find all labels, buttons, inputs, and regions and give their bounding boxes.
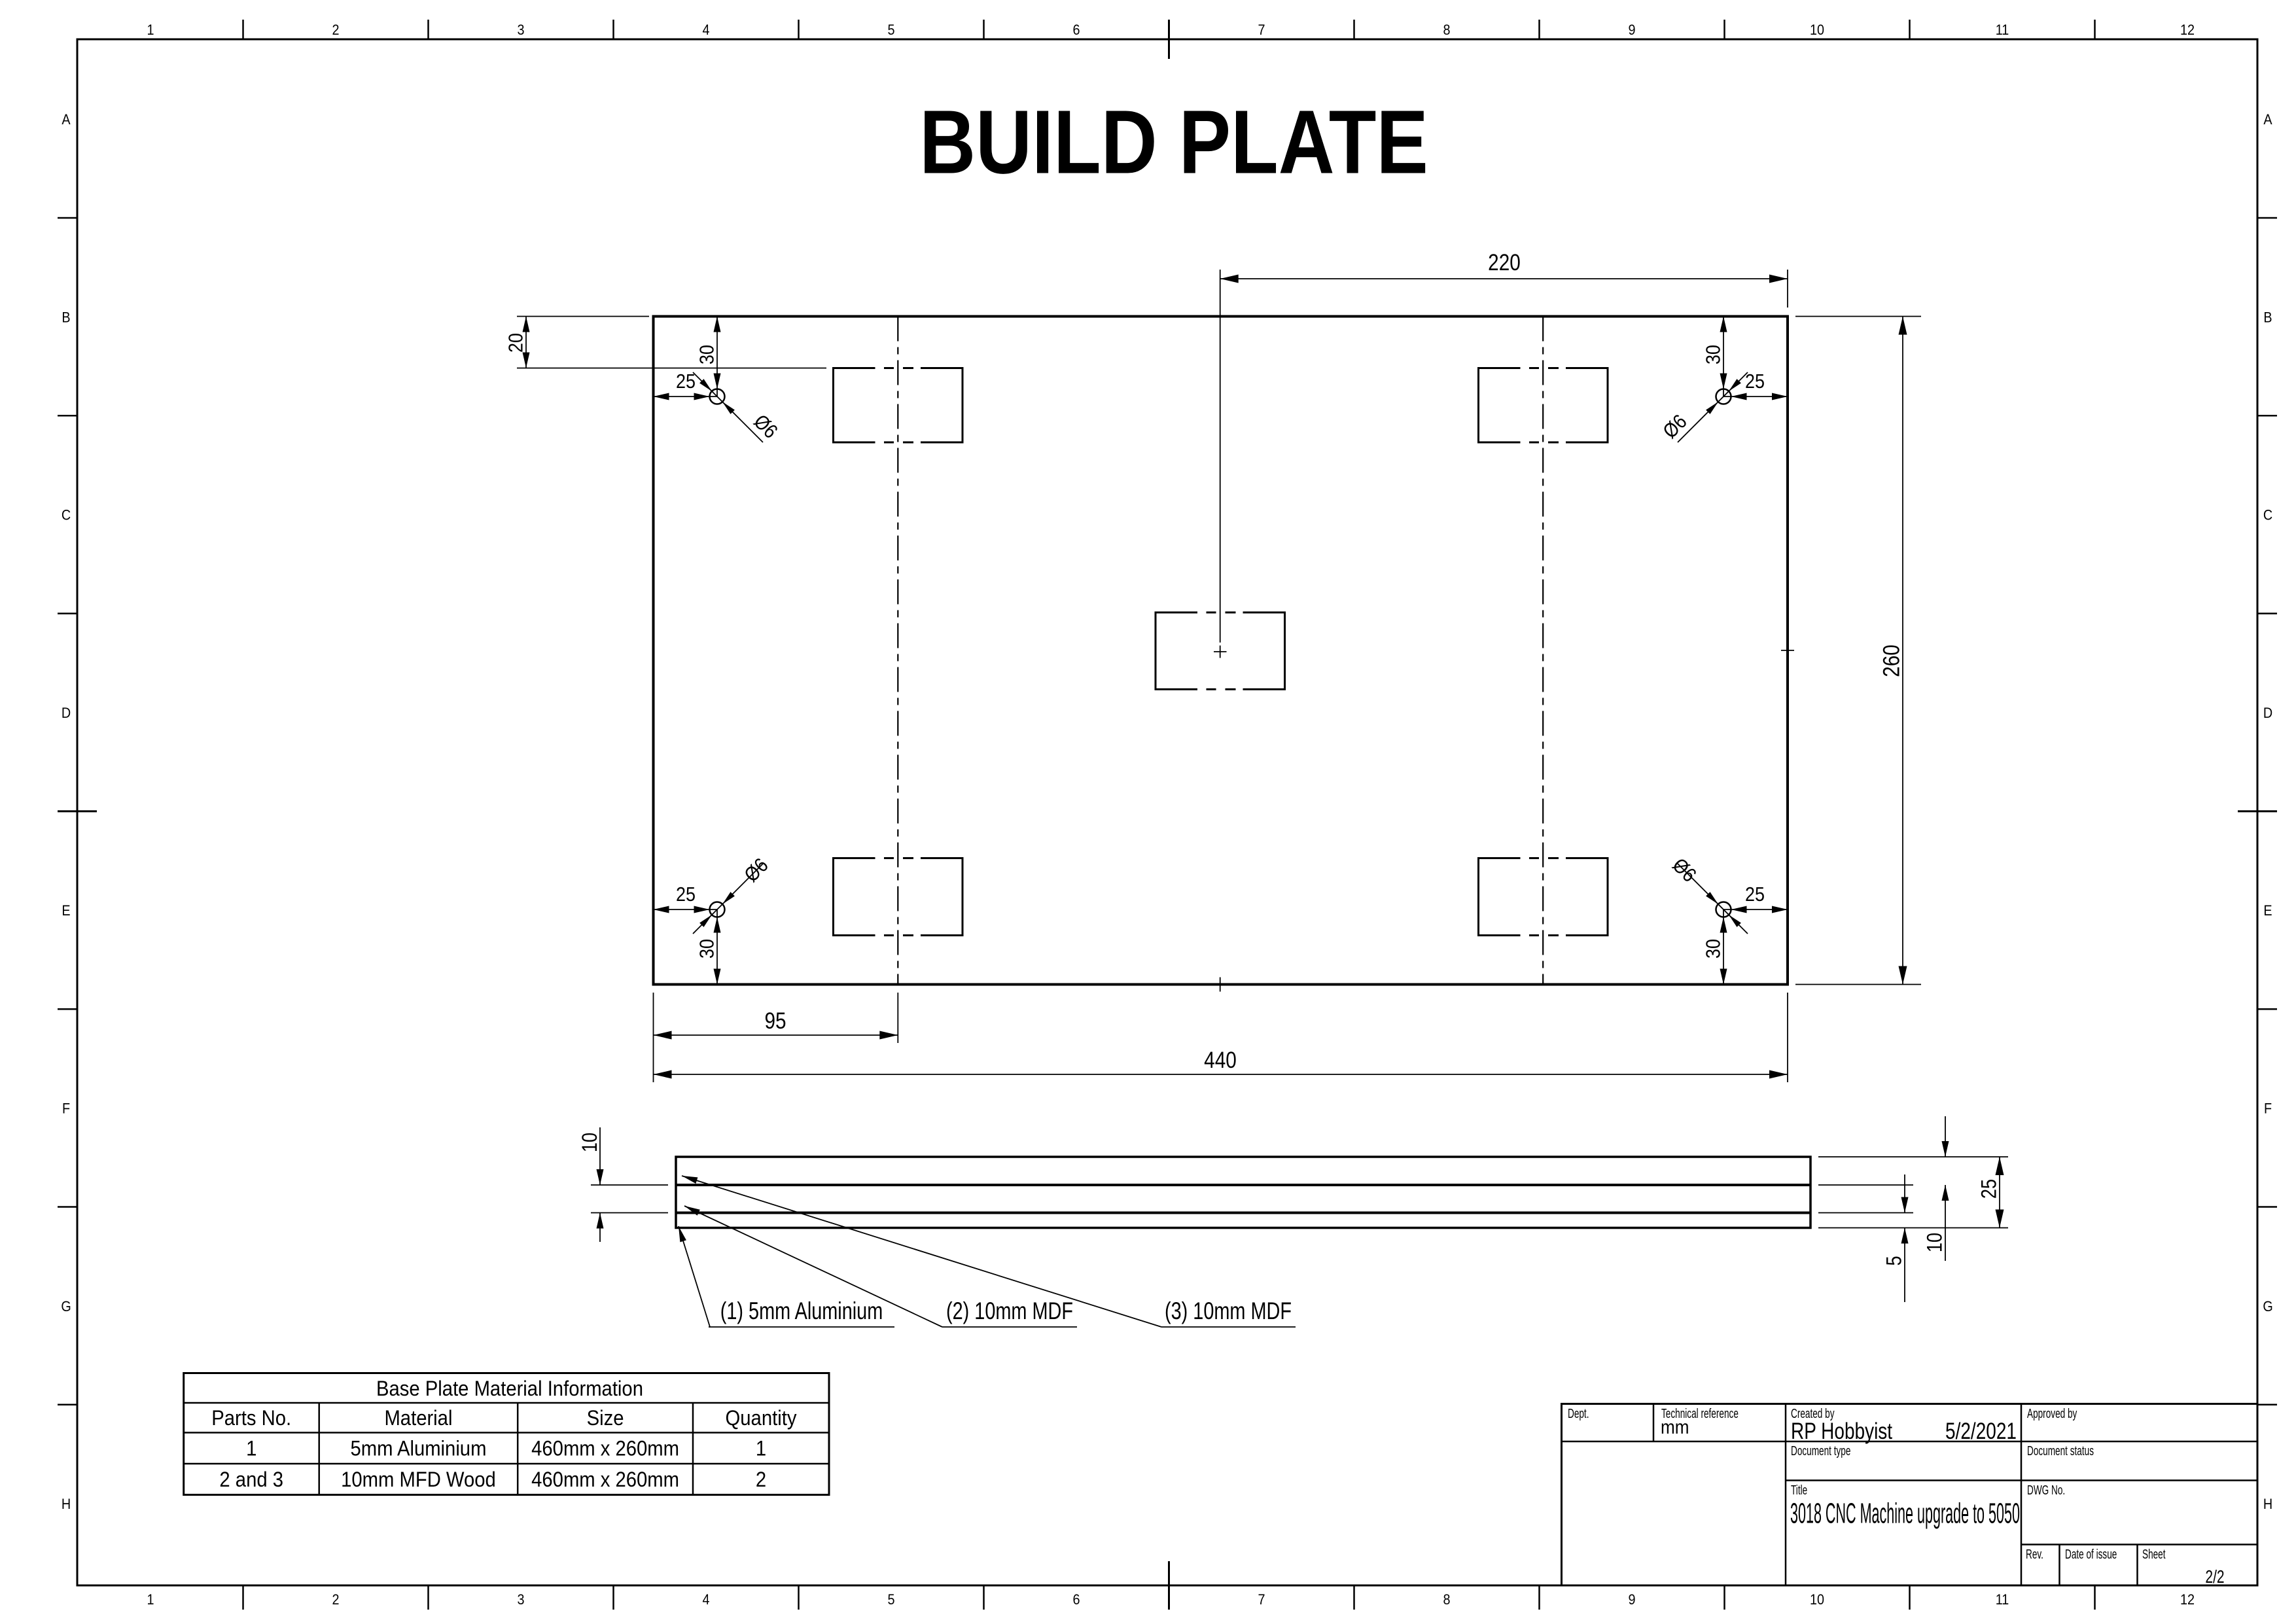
svg-text:10mm MFD Wood: 10mm MFD Wood xyxy=(341,1468,496,1492)
svg-text:1: 1 xyxy=(147,1592,154,1608)
svg-text:C: C xyxy=(2263,508,2272,523)
svg-text:6: 6 xyxy=(1072,1592,1080,1608)
svg-text:3: 3 xyxy=(517,1592,524,1608)
svg-text:H: H xyxy=(62,1496,71,1512)
svg-text:Date of issue: Date of issue xyxy=(2065,1547,2117,1561)
svg-text:5mm Aluminium: 5mm Aluminium xyxy=(350,1436,486,1460)
svg-text:B: B xyxy=(2263,309,2272,325)
svg-text:A: A xyxy=(62,112,70,128)
svg-text:9: 9 xyxy=(1628,1592,1635,1608)
svg-text:(3) 10mm MDF: (3) 10mm MDF xyxy=(1165,1298,1292,1325)
svg-text:5: 5 xyxy=(887,22,894,38)
svg-text:G: G xyxy=(2263,1299,2272,1315)
svg-text:2 and 3: 2 and 3 xyxy=(219,1468,283,1492)
svg-text:25: 25 xyxy=(676,370,696,393)
svg-text:11: 11 xyxy=(1996,1592,2009,1608)
svg-text:H: H xyxy=(2263,1496,2272,1512)
svg-text:11: 11 xyxy=(1996,22,2009,38)
svg-text:Size: Size xyxy=(587,1406,624,1430)
svg-text:1: 1 xyxy=(246,1436,256,1460)
svg-text:4: 4 xyxy=(702,22,709,38)
svg-text:25: 25 xyxy=(1745,370,1765,393)
svg-text:(1) 5mm Aluminium: (1) 5mm Aluminium xyxy=(720,1298,883,1325)
svg-text:95: 95 xyxy=(764,1008,786,1034)
svg-text:30: 30 xyxy=(696,345,718,364)
svg-text:5: 5 xyxy=(887,1592,894,1608)
svg-text:25: 25 xyxy=(1977,1179,2001,1199)
svg-text:1: 1 xyxy=(147,22,154,38)
svg-text:3018 CNC Machine upgrade to 50: 3018 CNC Machine upgrade to 5050 xyxy=(1790,1498,2020,1529)
svg-text:25: 25 xyxy=(676,883,696,906)
svg-text:30: 30 xyxy=(1703,939,1725,959)
svg-text:Parts No.: Parts No. xyxy=(211,1406,291,1430)
svg-text:E: E xyxy=(62,903,70,919)
svg-text:RP Hobbyist: RP Hobbyist xyxy=(1791,1418,1892,1444)
svg-text:2/2: 2/2 xyxy=(2205,1567,2224,1587)
svg-text:7: 7 xyxy=(1258,22,1265,38)
svg-text:460mm x 260mm: 460mm x 260mm xyxy=(531,1436,679,1460)
svg-text:10: 10 xyxy=(1810,1592,1824,1608)
svg-text:F: F xyxy=(62,1101,70,1117)
svg-text:Quantity: Quantity xyxy=(726,1406,797,1430)
svg-text:mm: mm xyxy=(1661,1416,1689,1438)
svg-text:8: 8 xyxy=(1443,1592,1450,1608)
svg-text:B: B xyxy=(62,309,70,325)
svg-text:30: 30 xyxy=(696,939,718,959)
svg-text:5/2/2021: 5/2/2021 xyxy=(1945,1418,2017,1444)
svg-text:Title: Title xyxy=(1791,1483,1807,1497)
svg-text:A: A xyxy=(2263,112,2272,128)
svg-text:30: 30 xyxy=(1703,345,1725,364)
svg-text:8: 8 xyxy=(1443,22,1450,38)
svg-text:DWG No.: DWG No. xyxy=(2027,1483,2065,1497)
svg-text:5: 5 xyxy=(1882,1256,1906,1265)
svg-text:220: 220 xyxy=(1488,250,1521,275)
svg-text:25: 25 xyxy=(1745,883,1765,906)
svg-text:260: 260 xyxy=(1879,644,1904,677)
svg-text:Document type: Document type xyxy=(1791,1443,1850,1458)
svg-text:9: 9 xyxy=(1628,22,1635,38)
svg-text:BUILD PLATE: BUILD PLATE xyxy=(919,92,1428,192)
svg-text:12: 12 xyxy=(2180,1592,2195,1608)
svg-text:4: 4 xyxy=(702,1592,709,1608)
svg-text:Document status: Document status xyxy=(2027,1443,2094,1458)
svg-text:Dept.: Dept. xyxy=(1568,1406,1589,1421)
svg-text:(2) 10mm MDF: (2) 10mm MDF xyxy=(946,1298,1073,1325)
svg-text:3: 3 xyxy=(517,22,524,38)
svg-text:2: 2 xyxy=(332,1592,339,1608)
svg-text:10: 10 xyxy=(1923,1233,1947,1252)
svg-text:20: 20 xyxy=(505,333,527,353)
svg-text:460mm x 260mm: 460mm x 260mm xyxy=(531,1468,679,1492)
svg-text:2: 2 xyxy=(332,22,339,38)
svg-text:D: D xyxy=(2263,705,2272,721)
svg-text:6: 6 xyxy=(1072,22,1080,38)
svg-text:7: 7 xyxy=(1258,1592,1265,1608)
svg-text:2: 2 xyxy=(756,1468,766,1492)
svg-text:Rev.: Rev. xyxy=(2026,1547,2043,1561)
svg-text:10: 10 xyxy=(1810,22,1824,38)
svg-text:F: F xyxy=(2264,1101,2272,1117)
svg-text:C: C xyxy=(62,508,71,523)
svg-text:440: 440 xyxy=(1204,1048,1237,1073)
svg-text:1: 1 xyxy=(756,1436,766,1460)
svg-text:E: E xyxy=(2263,903,2272,919)
svg-text:Base Plate Material Informatio: Base Plate Material Information xyxy=(376,1377,643,1401)
svg-text:12: 12 xyxy=(2180,22,2195,38)
svg-text:Sheet: Sheet xyxy=(2142,1547,2166,1561)
svg-text:Approved by: Approved by xyxy=(2027,1406,2077,1421)
svg-text:Material: Material xyxy=(384,1406,452,1430)
svg-text:10: 10 xyxy=(578,1133,602,1152)
svg-text:G: G xyxy=(61,1299,71,1315)
svg-text:D: D xyxy=(62,705,71,721)
